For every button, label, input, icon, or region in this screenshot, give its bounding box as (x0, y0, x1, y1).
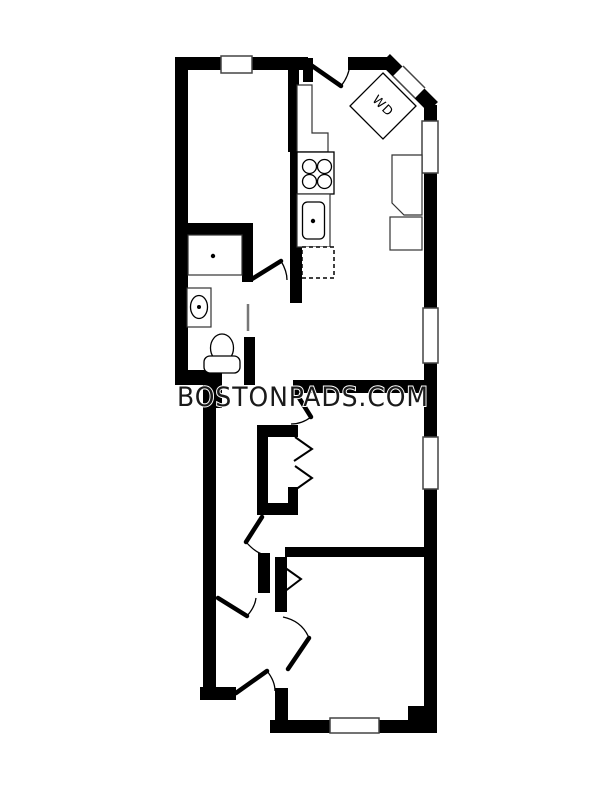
shower-icon (188, 235, 242, 275)
door-bathroom (248, 261, 287, 331)
wall-bedroom3-left-stub (275, 688, 288, 723)
bifold-door-2 (295, 466, 312, 490)
radiator-icon (390, 217, 422, 250)
door-entry (236, 671, 275, 693)
kitchen-sink-icon (297, 194, 330, 247)
stove-icon (297, 152, 334, 194)
dishwasher-icon (302, 247, 334, 278)
window-right-3 (423, 437, 438, 489)
wall-bedroom3-top (285, 547, 437, 557)
window-bottom-wall (330, 718, 379, 733)
floorplan-page: WD (0, 0, 612, 792)
floorplan-svg: WD (0, 0, 612, 792)
wall-bedroom3-left-upper (275, 557, 287, 612)
kitchen-counter-icon (297, 85, 328, 152)
door-bedroom3 (283, 617, 309, 669)
wall-bath-right-upper (242, 223, 253, 282)
wall-right (424, 105, 437, 733)
window-right-2 (423, 308, 438, 363)
wall-left-upper (175, 57, 188, 383)
door-kitchen-top (308, 63, 350, 86)
window-right-1 (422, 121, 438, 173)
watermark-text: BOSTONPADS.COM (177, 382, 429, 413)
vanity-sink-icon (187, 288, 211, 327)
chimney-alcove-icon (392, 155, 422, 215)
wall-bedroom1-bottom (175, 223, 250, 236)
wall-closet2-left (258, 553, 270, 593)
wall-bath-right-lower (244, 337, 255, 385)
door-closet2 (246, 517, 262, 554)
wall-closet1-top (257, 425, 298, 437)
window-top-wall (221, 56, 252, 73)
wall-closet1-left (257, 425, 268, 515)
bifold-door-1 (294, 437, 312, 461)
toilet-icon (204, 334, 240, 373)
wall-closet1-right-stub (288, 487, 298, 515)
wall-left-lower (203, 385, 216, 700)
wall-kitchen-west-lower (290, 247, 302, 303)
door-corridor (218, 598, 256, 616)
